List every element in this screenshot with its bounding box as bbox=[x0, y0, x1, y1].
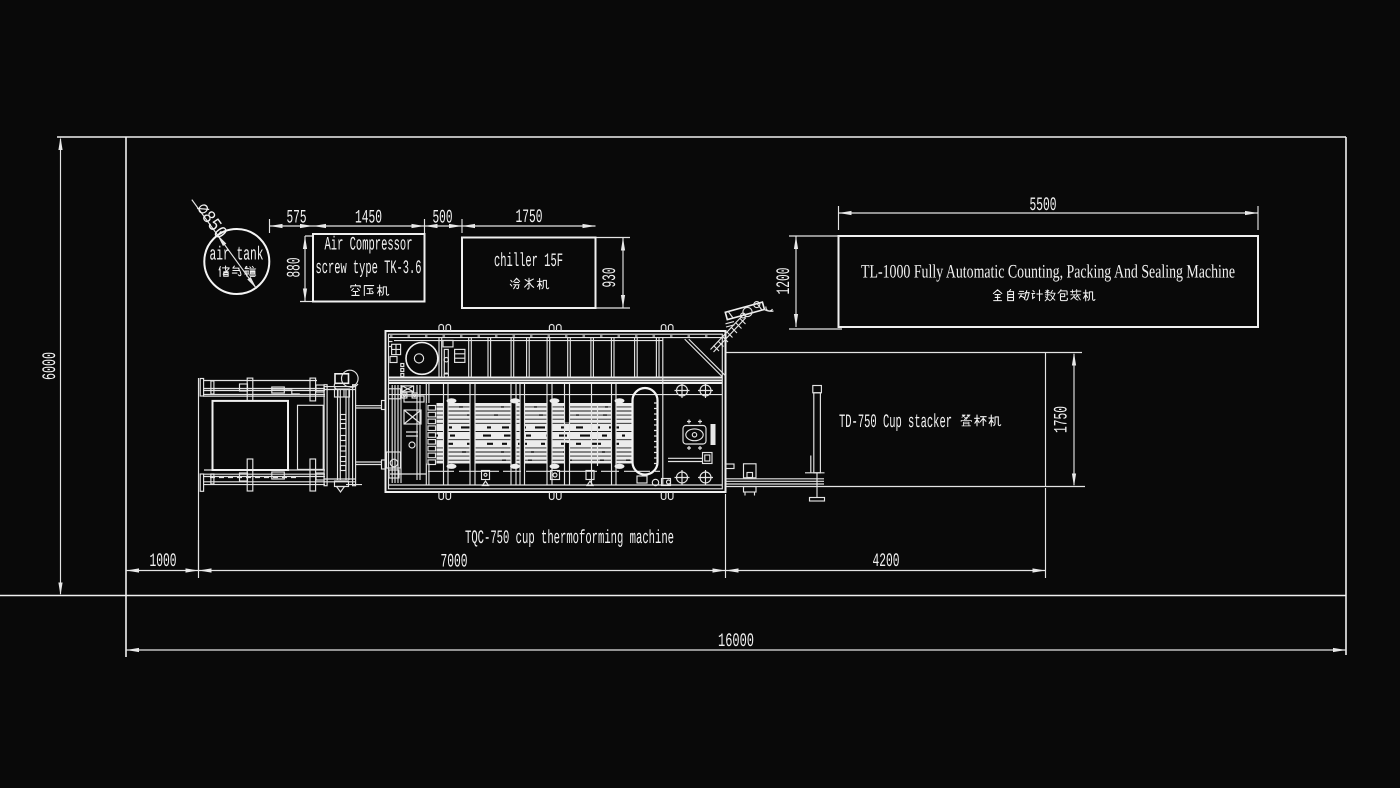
svg-text:Air Compressor: Air Compressor bbox=[325, 234, 413, 256]
svg-text:TQC-750 cup thermoforming mach: TQC-750 cup thermoforming machine bbox=[465, 527, 674, 549]
svg-text:1750: 1750 bbox=[1051, 406, 1073, 433]
svg-text:1000: 1000 bbox=[150, 550, 177, 572]
svg-text:7000: 7000 bbox=[441, 551, 468, 573]
svg-text:TD-750 Cup stacker: TD-750 Cup stacker bbox=[839, 411, 952, 433]
svg-text:16000: 16000 bbox=[718, 630, 754, 652]
svg-text:5500: 5500 bbox=[1030, 194, 1057, 216]
svg-text:500: 500 bbox=[433, 207, 453, 229]
svg-text:930: 930 bbox=[599, 268, 621, 288]
svg-text:1450: 1450 bbox=[355, 207, 382, 229]
svg-text:1750: 1750 bbox=[516, 206, 543, 228]
svg-text:chiller 15F: chiller 15F bbox=[494, 250, 563, 272]
svg-text:TL-1000 Fully Automatic Count: TL-1000 Fully Automatic Counting, Packin… bbox=[861, 262, 1235, 283]
svg-text:575: 575 bbox=[287, 207, 307, 229]
svg-text:4200: 4200 bbox=[873, 550, 900, 572]
svg-text:screw type TK-3.6: screw type TK-3.6 bbox=[316, 257, 422, 279]
svg-text:6000: 6000 bbox=[39, 352, 61, 380]
svg-text:1200: 1200 bbox=[773, 268, 795, 295]
svg-text:880: 880 bbox=[284, 258, 306, 278]
svg-text:air tank: air tank bbox=[210, 244, 264, 266]
